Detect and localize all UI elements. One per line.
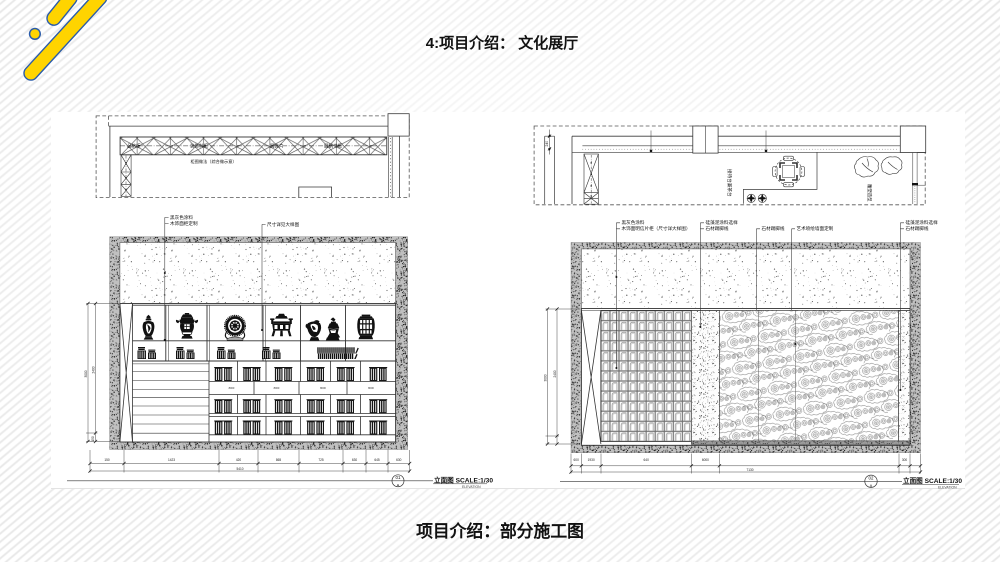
svg-text:艺术喷绘墙面定制: 艺术喷绘墙面定制 bbox=[797, 225, 834, 232]
svg-text:420: 420 bbox=[236, 458, 242, 462]
svg-text:630: 630 bbox=[396, 458, 402, 462]
svg-text:2400: 2400 bbox=[92, 366, 96, 373]
svg-text:150: 150 bbox=[104, 458, 110, 462]
svg-text:1423: 1423 bbox=[168, 458, 175, 462]
svg-text:雕塑造型: 雕塑造型 bbox=[866, 184, 873, 202]
svg-text:6000: 6000 bbox=[702, 458, 709, 462]
svg-text:640: 640 bbox=[644, 458, 650, 462]
svg-text:石材踢脚线: 石材踢脚线 bbox=[906, 225, 929, 232]
svg-text:接待台兼茶台: 接待台兼茶台 bbox=[726, 169, 733, 197]
svg-text:木饰面明信片柜（尺寸详大样图）: 木饰面明信片柜（尺寸详大样图） bbox=[622, 225, 691, 232]
svg-text:硅藻泥涂料选样: 硅藻泥涂料选样 bbox=[906, 219, 939, 226]
svg-text:8000: 8000 bbox=[320, 386, 326, 390]
svg-text:645: 645 bbox=[374, 458, 380, 462]
svg-text:木饰面柜定制: 木饰面柜定制 bbox=[170, 220, 198, 227]
svg-text:A: A bbox=[397, 483, 400, 488]
svg-text:600: 600 bbox=[574, 458, 580, 462]
svg-text:8000: 8000 bbox=[368, 386, 374, 390]
svg-text:硅藻泥涂料选样: 硅藻泥涂料选样 bbox=[706, 219, 739, 226]
svg-text:150: 150 bbox=[91, 436, 95, 442]
svg-text:630: 630 bbox=[352, 458, 358, 462]
svg-text:7130: 7130 bbox=[746, 468, 753, 472]
svg-text:立面图 SCALE:1/30: 立面图 SCALE:1/30 bbox=[434, 476, 493, 485]
svg-text:2400: 2400 bbox=[553, 370, 557, 377]
svg-text:8000: 8000 bbox=[274, 386, 280, 390]
svg-text:8000: 8000 bbox=[229, 386, 235, 390]
svg-text:石材踢脚线: 石材踢脚线 bbox=[706, 225, 729, 232]
svg-text:ELEVATION: ELEVATION bbox=[938, 486, 957, 490]
svg-text:01: 01 bbox=[396, 475, 401, 480]
svg-text:1930: 1930 bbox=[588, 458, 595, 462]
svg-text:展销书柜: 展销书柜 bbox=[324, 143, 342, 150]
svg-text:3000: 3000 bbox=[544, 374, 548, 381]
svg-text:柜图做法（综合做示意）: 柜图做法（综合做示意） bbox=[191, 158, 237, 165]
svg-text:黑灰色涂料: 黑灰色涂料 bbox=[622, 219, 645, 226]
svg-text:尺寸详见大样图: 尺寸详见大样图 bbox=[267, 221, 300, 228]
svg-text:ELEVATION: ELEVATION bbox=[462, 485, 481, 489]
svg-text:装饰料柜: 装饰料柜 bbox=[190, 143, 208, 150]
svg-text:品格柜: 品格柜 bbox=[127, 143, 141, 150]
svg-text:A: A bbox=[870, 483, 873, 488]
svg-text:3000: 3000 bbox=[84, 370, 88, 377]
svg-text:725: 725 bbox=[318, 458, 324, 462]
svg-text:黑灰色涂料: 黑灰色涂料 bbox=[170, 214, 193, 221]
svg-text:865: 865 bbox=[276, 458, 282, 462]
svg-text:300: 300 bbox=[902, 458, 908, 462]
svg-text:石材踢脚线: 石材踢脚线 bbox=[762, 225, 785, 232]
svg-text:240: 240 bbox=[545, 141, 549, 147]
svg-text:圆饰片: 圆饰片 bbox=[270, 143, 284, 150]
svg-text:5410: 5410 bbox=[236, 467, 243, 471]
svg-text:立面图 SCALE:1/30: 立面图 SCALE:1/30 bbox=[903, 476, 962, 485]
svg-text:02: 02 bbox=[869, 476, 874, 481]
